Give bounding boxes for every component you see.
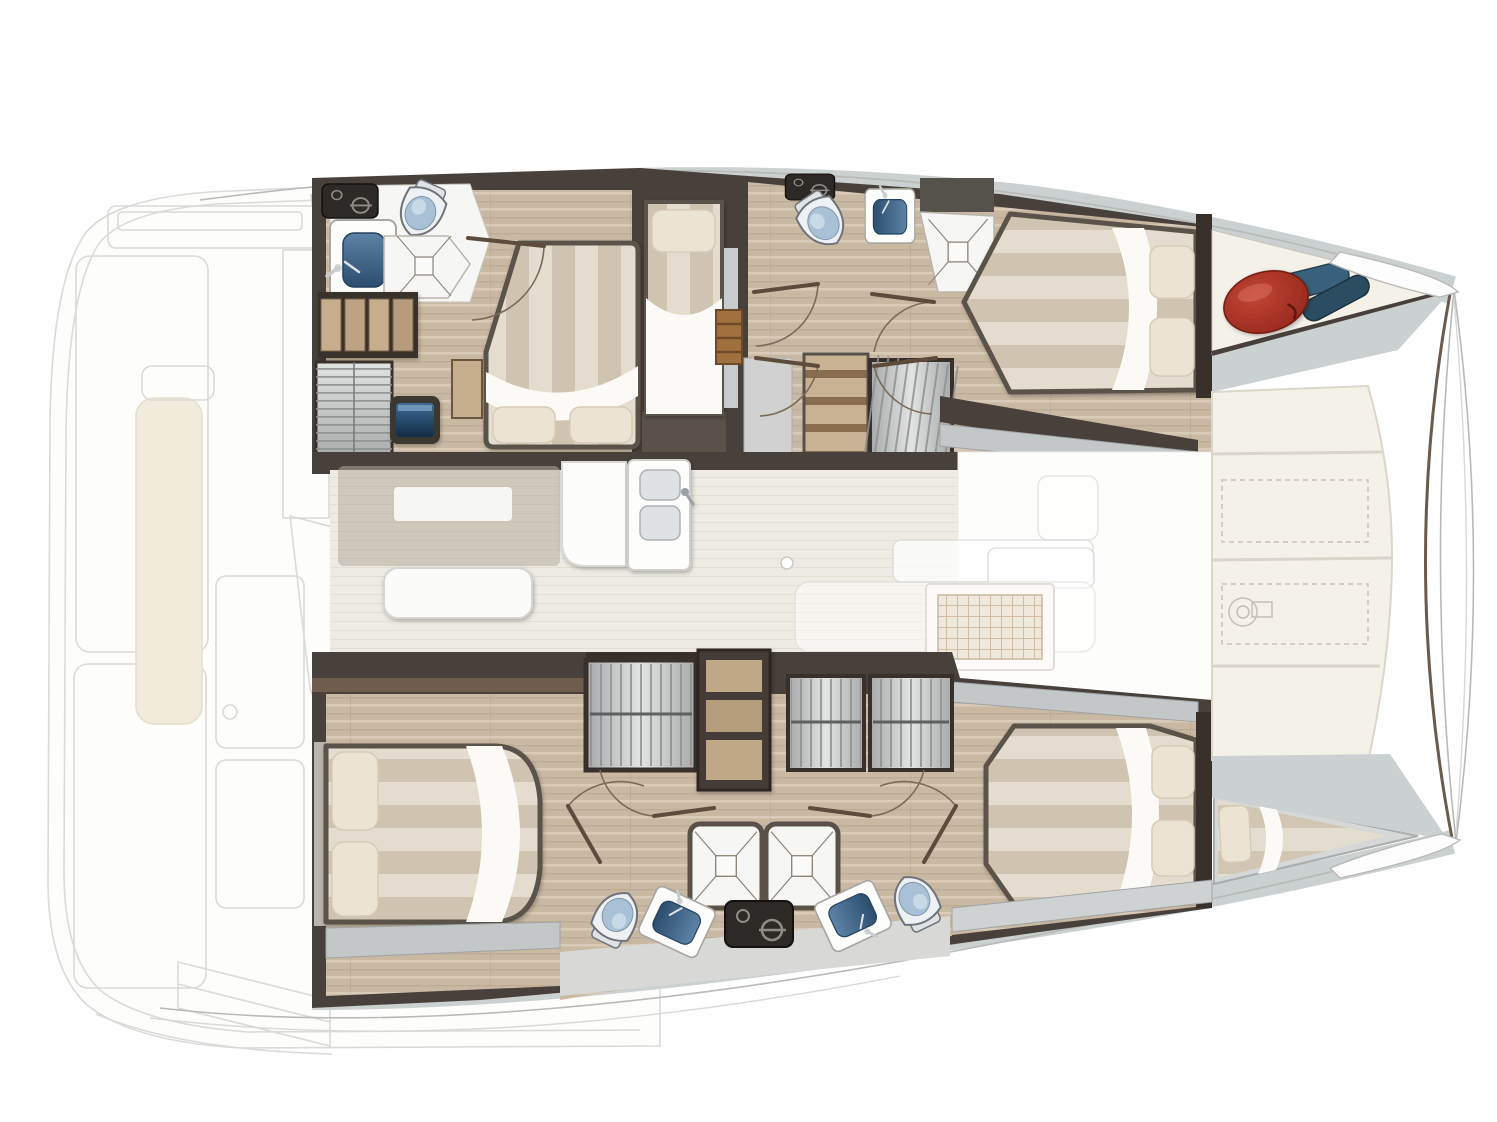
outer-hull-band xyxy=(1440,290,1473,842)
wood-ladder xyxy=(716,310,742,364)
tv-screen xyxy=(390,396,440,444)
foredeck-lockers xyxy=(1212,292,1452,840)
port-aft-wardrobe xyxy=(318,292,418,358)
galley-sink-bowl xyxy=(640,506,680,540)
port-aft-double-bed xyxy=(486,243,638,447)
sloped-panel xyxy=(744,358,792,466)
port-forward-double-bed xyxy=(964,214,1196,392)
salon-sofa xyxy=(562,462,626,566)
pillow xyxy=(332,842,378,916)
pillow xyxy=(1150,318,1194,376)
pillow xyxy=(1219,805,1252,862)
hanging-locker xyxy=(870,676,952,770)
forward-bulkhead xyxy=(1196,214,1212,398)
floor-plan-canvas xyxy=(0,0,1497,1122)
bathroom-sink xyxy=(865,186,915,243)
pillow xyxy=(1152,820,1194,876)
starboard-aft-double-bed xyxy=(326,746,540,922)
shower-cabinet xyxy=(920,178,994,212)
port-forward-steps xyxy=(804,354,868,464)
pillow xyxy=(332,752,378,830)
berth-sheet xyxy=(646,298,722,414)
bedside-cabinet xyxy=(452,360,482,418)
shelf-unit xyxy=(698,650,770,790)
hanging-locker xyxy=(586,652,696,770)
port-aft-bathroom xyxy=(322,176,490,302)
starboard-forward-double-bed xyxy=(986,726,1196,904)
berth-base xyxy=(642,412,726,454)
pillow xyxy=(570,407,632,443)
aft-wall-trim xyxy=(312,678,590,692)
port-companionway-stairs xyxy=(316,362,392,462)
galley-counter xyxy=(628,460,693,570)
pillow xyxy=(1150,246,1194,298)
deck-fitting-dot xyxy=(781,557,793,569)
salon-bench xyxy=(384,568,532,618)
catamaran-floor-plan xyxy=(0,0,1497,1122)
vanity-counter-black xyxy=(322,184,378,218)
pillow xyxy=(652,210,715,252)
galley-sink-bowl xyxy=(640,470,680,500)
systems-panel-black xyxy=(725,901,793,947)
hanging-locker xyxy=(788,676,864,770)
shower-tray xyxy=(690,824,762,908)
shower-tray xyxy=(766,824,838,908)
ghost-bench-cushion xyxy=(136,398,202,724)
pillow xyxy=(1152,746,1194,798)
pillow xyxy=(493,407,555,443)
forward-bulkhead xyxy=(1196,712,1212,908)
salon-table-ghost xyxy=(338,466,560,566)
